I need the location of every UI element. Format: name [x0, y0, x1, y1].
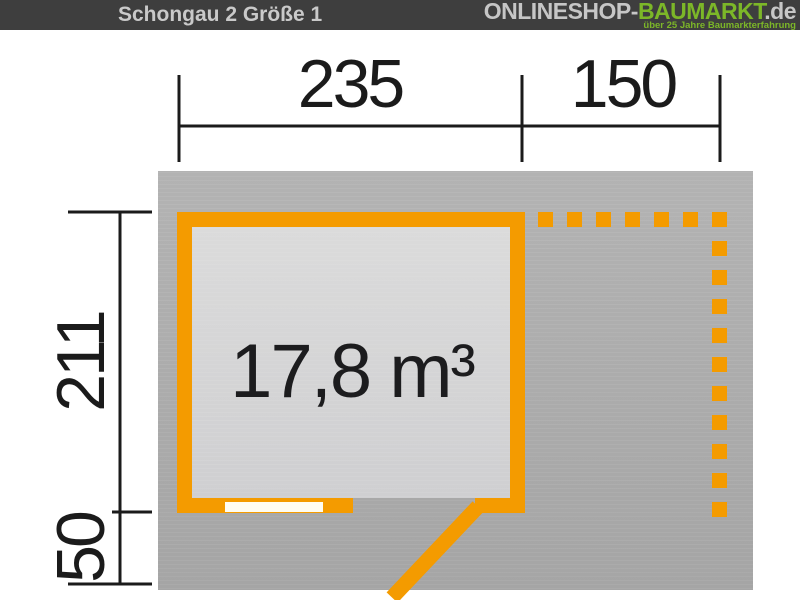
overhang-dash [712, 386, 727, 401]
overhang-dash [654, 212, 669, 227]
screenshot-stage: Schongau 2 Größe 1 ONLINESHOP-BAUMARKT.d… [0, 0, 800, 600]
front-window-strip [225, 502, 323, 512]
overhang-dash [712, 299, 727, 314]
overhang-dash [567, 212, 582, 227]
overhang-dash [712, 473, 727, 488]
overhang-dash [712, 241, 727, 256]
overhang-dash [596, 212, 611, 227]
dimension-label-width-side: 150 [571, 46, 677, 122]
overhang-dash [712, 415, 727, 430]
overhang-dash [712, 270, 727, 285]
wall-bottom-right-stub [475, 498, 525, 513]
overhang-dash [712, 357, 727, 372]
overhang-dash [712, 212, 727, 227]
overhang-dash [712, 328, 727, 343]
overhang-dash [712, 502, 727, 517]
overhang-dash [683, 212, 698, 227]
dimension-label-overhang: 50 [43, 512, 119, 583]
overhang-dash [712, 444, 727, 459]
overhang-dash [538, 212, 553, 227]
dimension-label-depth: 211 [43, 312, 119, 412]
overhang-dash [625, 212, 640, 227]
wall-right [510, 212, 525, 513]
dimension-label-width-main: 235 [298, 46, 403, 122]
floor-plan-svg: 235 150 211 50 17,8 m³ [0, 0, 800, 600]
wall-left [177, 212, 192, 513]
volume-label: 17,8 m³ [230, 329, 474, 414]
wall-top [177, 212, 525, 227]
